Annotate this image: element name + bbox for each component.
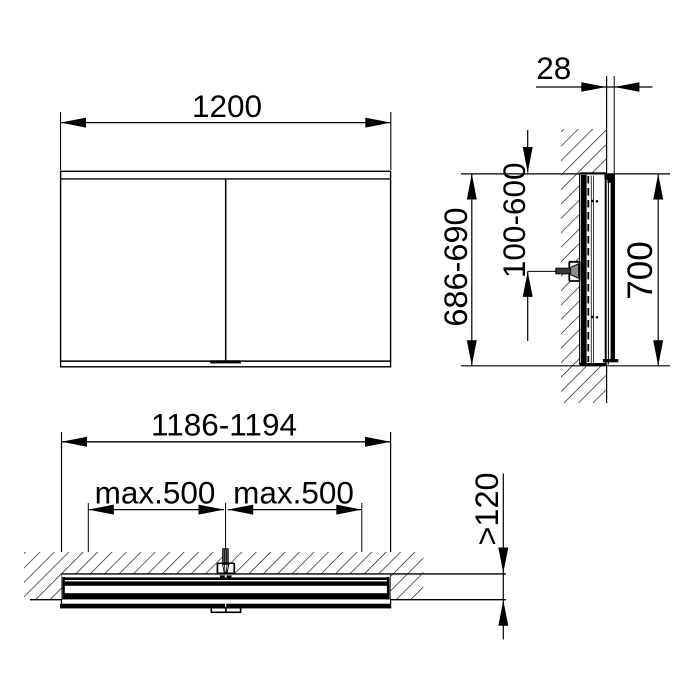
svg-text:>120: >120 <box>469 472 505 545</box>
svg-text:1186-1194: 1186-1194 <box>151 407 297 443</box>
svg-text:686-690: 686-690 <box>438 207 474 326</box>
svg-text:1200: 1200 <box>192 88 262 124</box>
svg-text:28: 28 <box>536 50 571 86</box>
svg-text:100-600: 100-600 <box>496 162 532 278</box>
svg-text:700: 700 <box>621 241 660 299</box>
